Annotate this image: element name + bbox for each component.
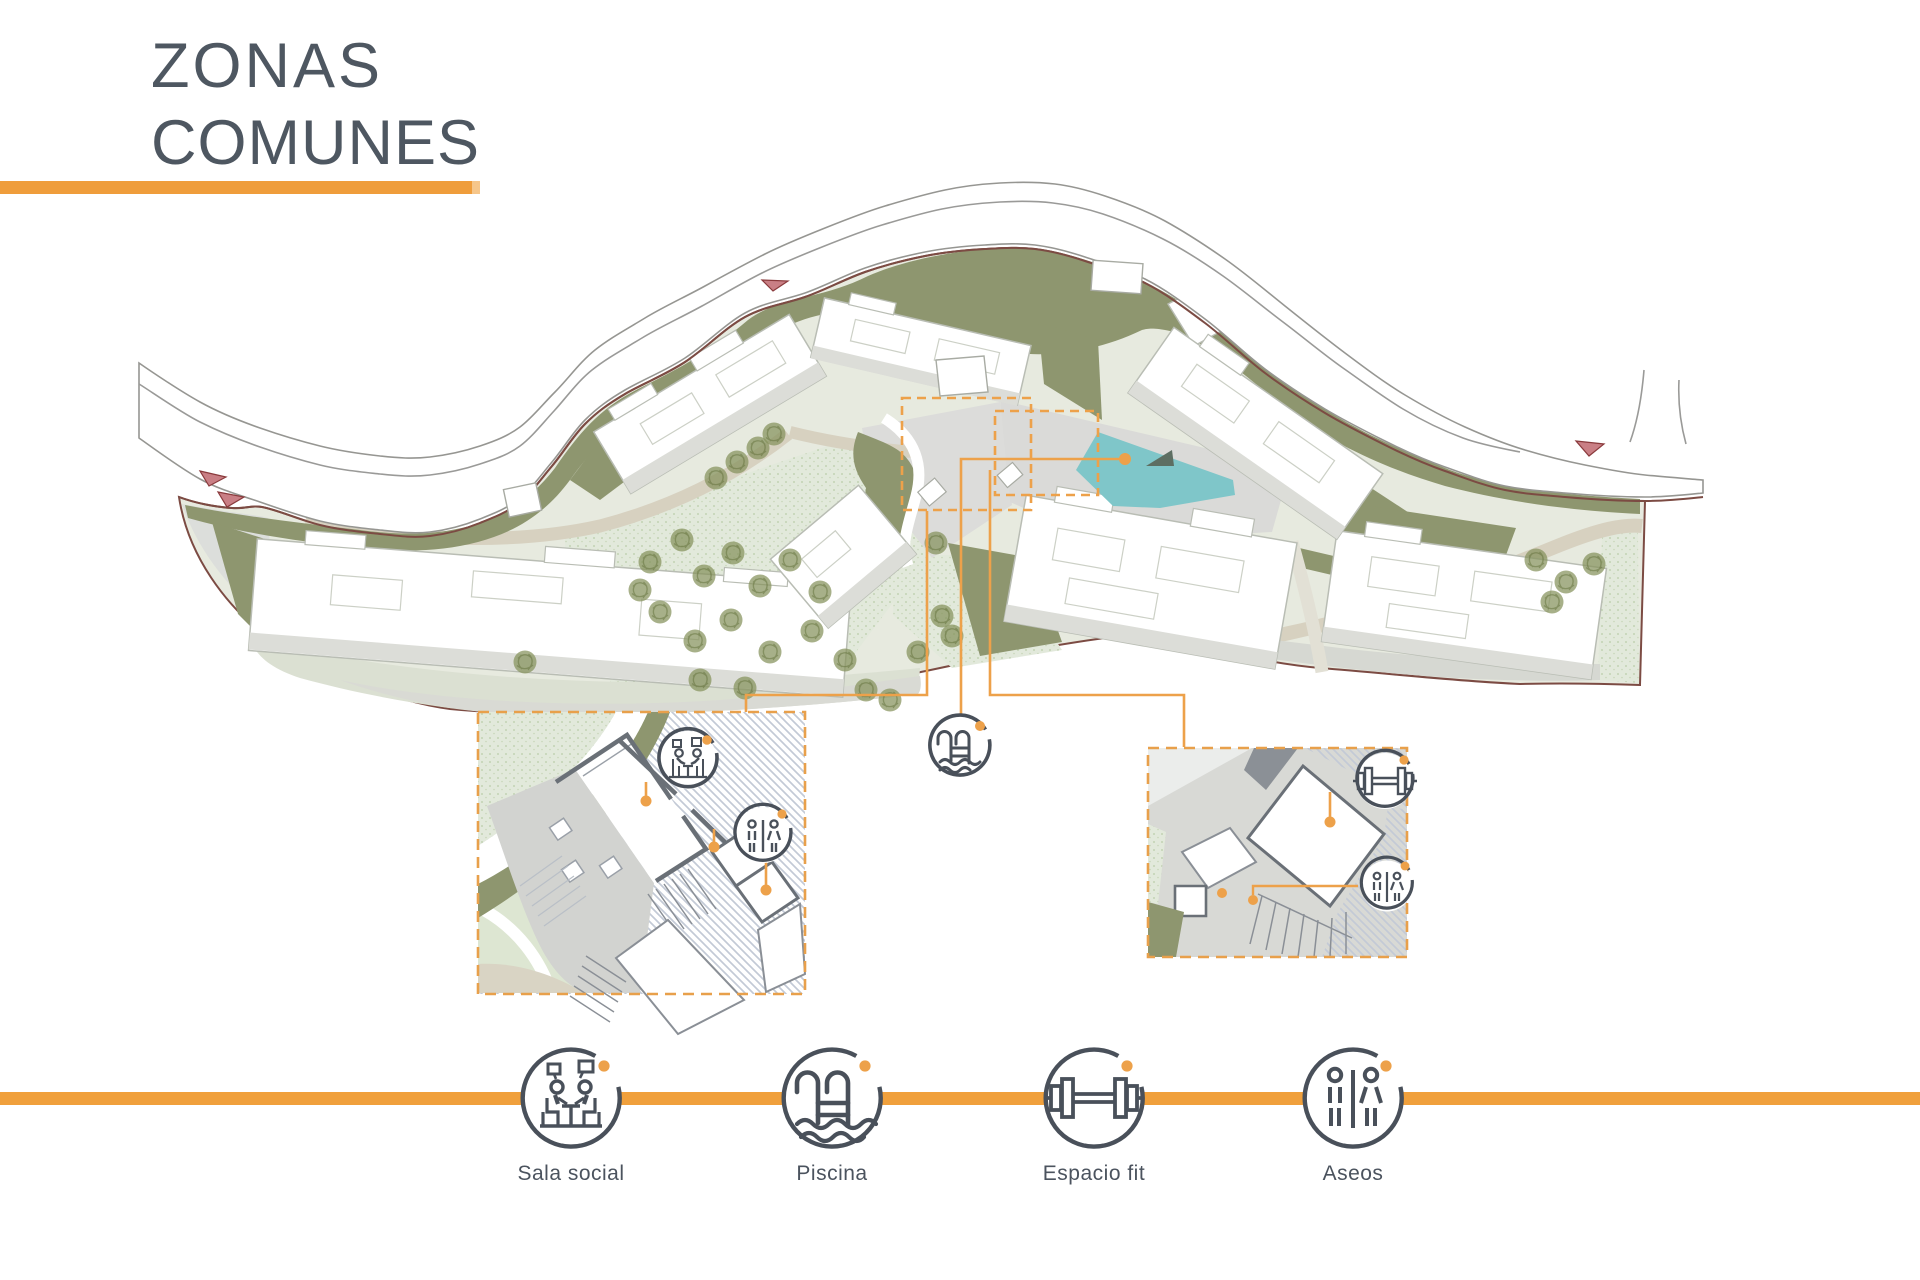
svg-text:Sala social: Sala social [517,1162,624,1185]
svg-text:COMUNES: COMUNES [151,108,480,178]
svg-text:Aseos: Aseos [1323,1162,1384,1185]
svg-text:ZONAS: ZONAS [151,31,383,101]
svg-text:Piscina: Piscina [796,1162,867,1185]
svg-text:Espacio fit: Espacio fit [1043,1162,1145,1185]
